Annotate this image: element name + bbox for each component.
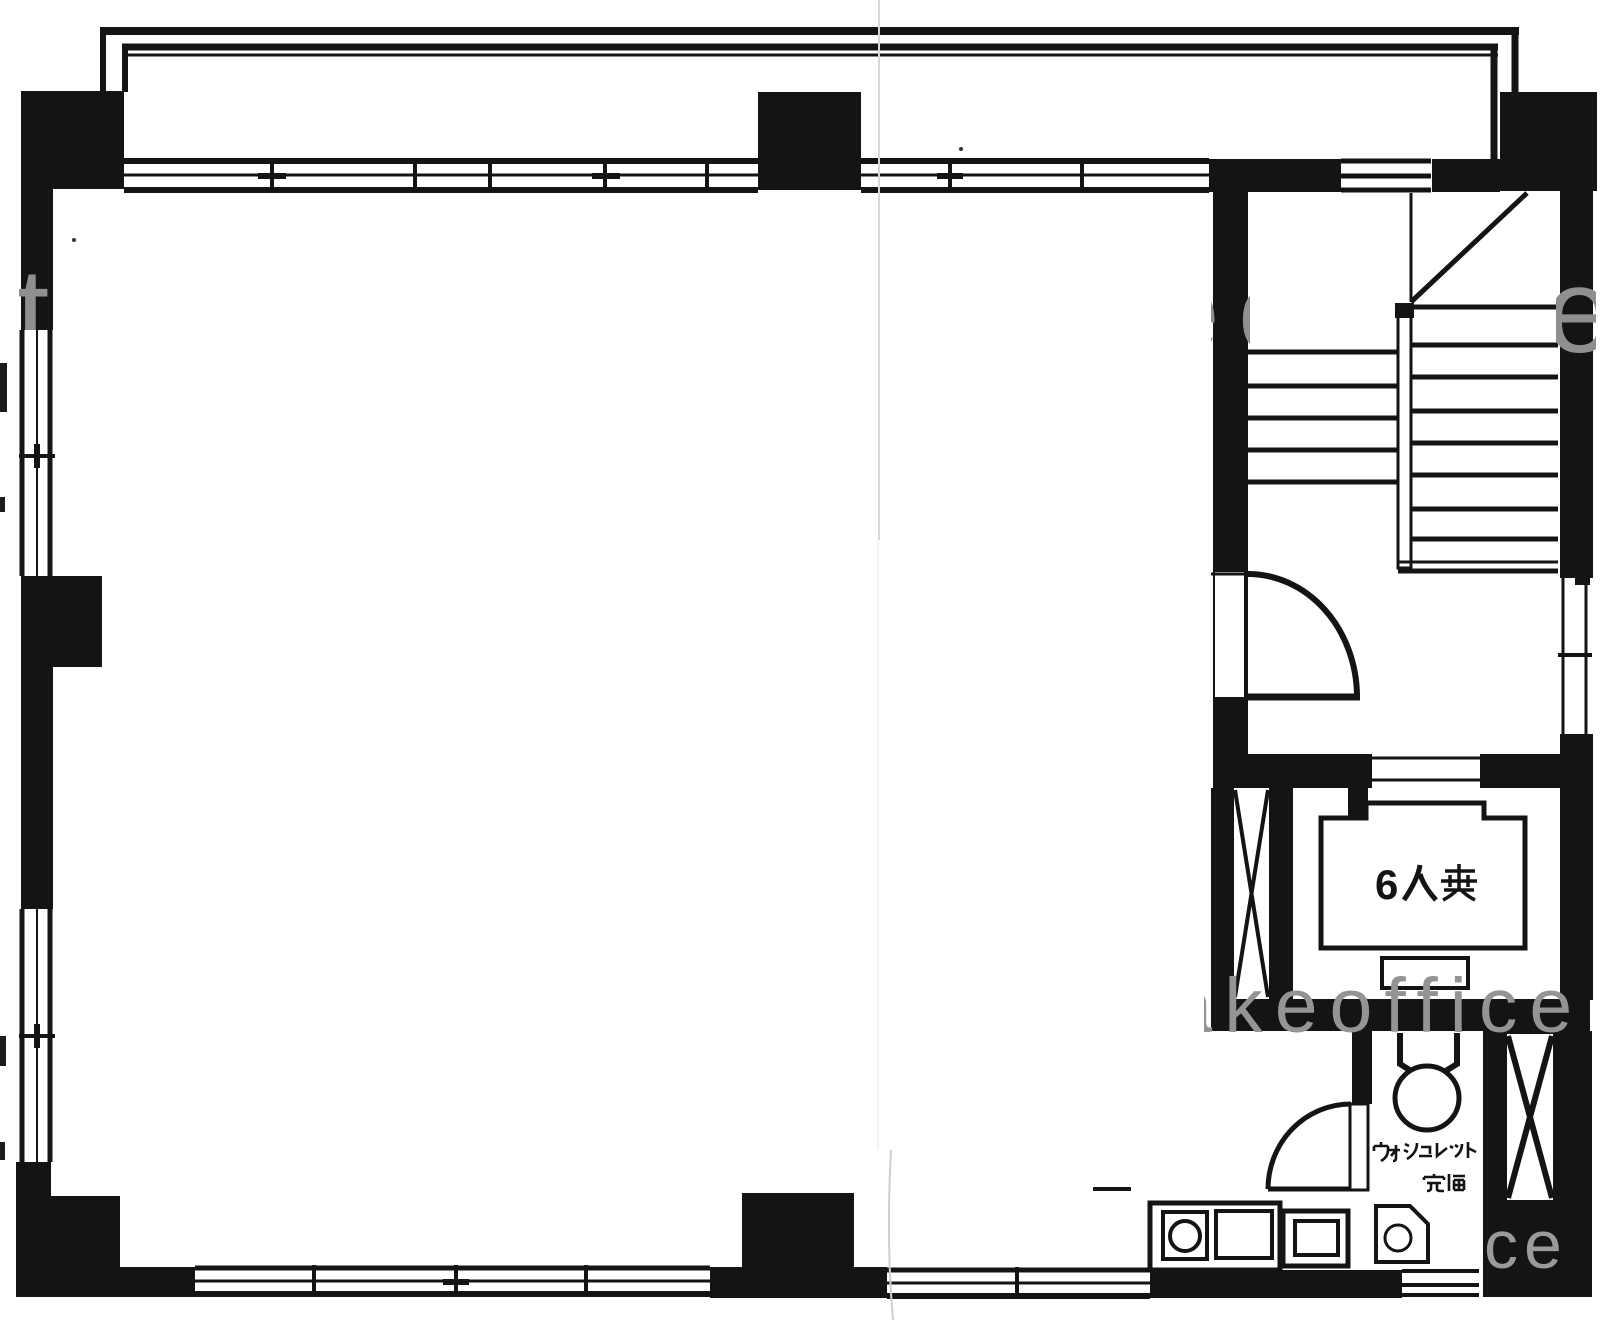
svg-text:6: 6 [1375,861,1398,908]
svg-text:ce: ce [1484,1207,1568,1283]
